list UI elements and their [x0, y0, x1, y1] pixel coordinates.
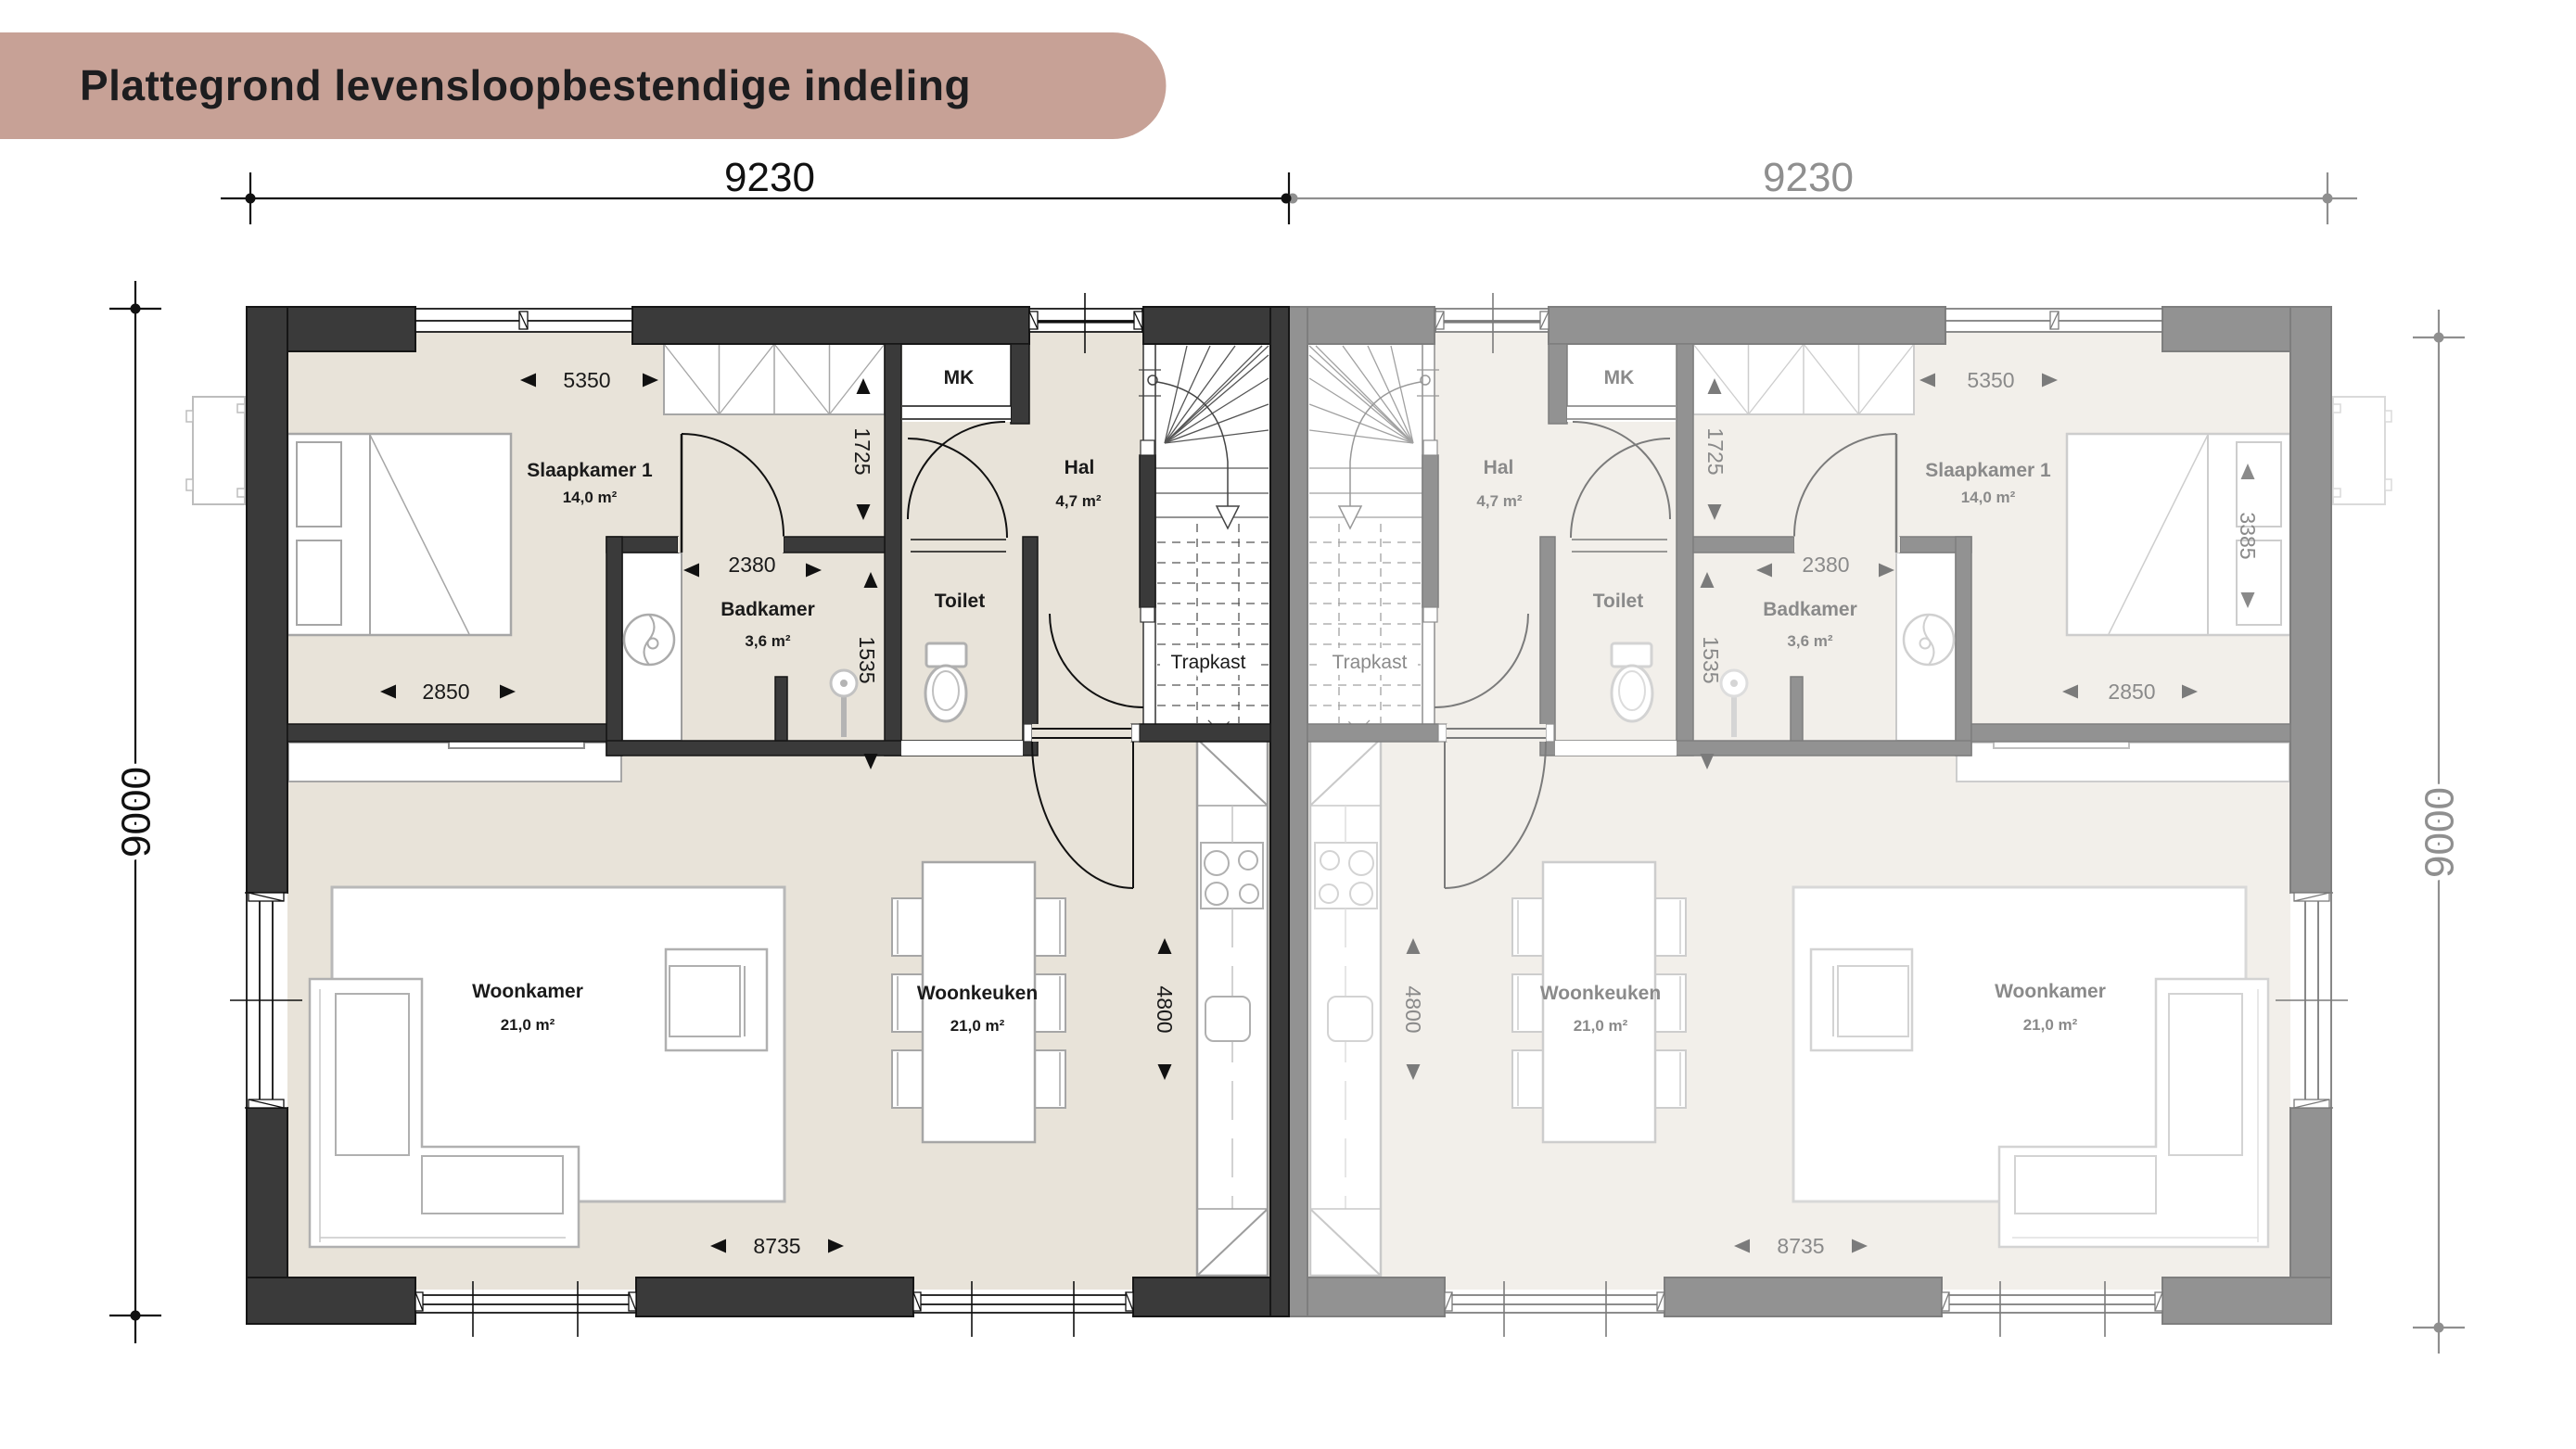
svg-text:14,0 m²: 14,0 m²: [563, 489, 618, 506]
svg-text:Badkamer: Badkamer: [721, 599, 815, 620]
svg-text:21,0 m²: 21,0 m²: [1574, 1017, 1628, 1035]
svg-text:2380: 2380: [728, 553, 775, 577]
svg-text:9000: 9000: [2417, 787, 2463, 878]
svg-text:Plattegrond levensloopbestendi: Plattegrond levensloopbestendige indelin…: [80, 61, 971, 109]
svg-text:Woonkamer: Woonkamer: [1995, 981, 2106, 1002]
svg-text:8735: 8735: [753, 1234, 800, 1258]
svg-text:4800: 4800: [1153, 985, 1177, 1033]
svg-text:Trapkast: Trapkast: [1171, 652, 1246, 673]
svg-text:1535: 1535: [1699, 636, 1723, 683]
svg-text:Toilet: Toilet: [935, 591, 985, 612]
svg-text:Toilet: Toilet: [1593, 591, 1643, 612]
svg-text:Slaapkamer 1: Slaapkamer 1: [1925, 460, 2051, 481]
svg-text:1725: 1725: [1703, 427, 1728, 475]
svg-text:3385: 3385: [2236, 512, 2260, 559]
svg-text:MK: MK: [1604, 367, 1635, 388]
svg-text:21,0 m²: 21,0 m²: [950, 1017, 1005, 1035]
svg-text:Badkamer: Badkamer: [1763, 599, 1857, 620]
svg-text:Hal: Hal: [1484, 457, 1514, 478]
svg-text:Trapkast: Trapkast: [1333, 652, 1408, 673]
svg-text:3,6 m²: 3,6 m²: [745, 632, 790, 650]
svg-text:Woonkeuken: Woonkeuken: [1540, 983, 1661, 1004]
svg-text:MK: MK: [944, 367, 975, 388]
svg-text:4,7 m²: 4,7 m²: [1055, 492, 1101, 510]
svg-text:2850: 2850: [422, 680, 469, 704]
svg-text:9000: 9000: [114, 767, 159, 858]
svg-text:1535: 1535: [855, 636, 879, 683]
svg-text:1725: 1725: [850, 427, 874, 475]
svg-text:4,7 m²: 4,7 m²: [1476, 492, 1522, 510]
svg-text:9230: 9230: [1763, 155, 1854, 200]
svg-text:Slaapkamer 1: Slaapkamer 1: [527, 460, 653, 481]
svg-text:21,0 m²: 21,0 m²: [501, 1016, 555, 1034]
svg-text:4800: 4800: [1401, 985, 1425, 1033]
svg-text:9230: 9230: [724, 155, 815, 200]
svg-text:14,0 m²: 14,0 m²: [1961, 489, 2016, 506]
svg-text:Woonkeuken: Woonkeuken: [917, 983, 1038, 1004]
svg-text:8735: 8735: [1777, 1234, 1824, 1258]
svg-text:5350: 5350: [1967, 368, 2014, 392]
svg-text:2850: 2850: [2108, 680, 2155, 704]
svg-text:5350: 5350: [563, 368, 610, 392]
svg-text:21,0 m²: 21,0 m²: [2023, 1016, 2078, 1034]
svg-text:Woonkamer: Woonkamer: [472, 981, 583, 1002]
svg-text:Hal: Hal: [1065, 457, 1095, 478]
svg-text:3,6 m²: 3,6 m²: [1787, 632, 1832, 650]
svg-text:2380: 2380: [1802, 553, 1849, 577]
